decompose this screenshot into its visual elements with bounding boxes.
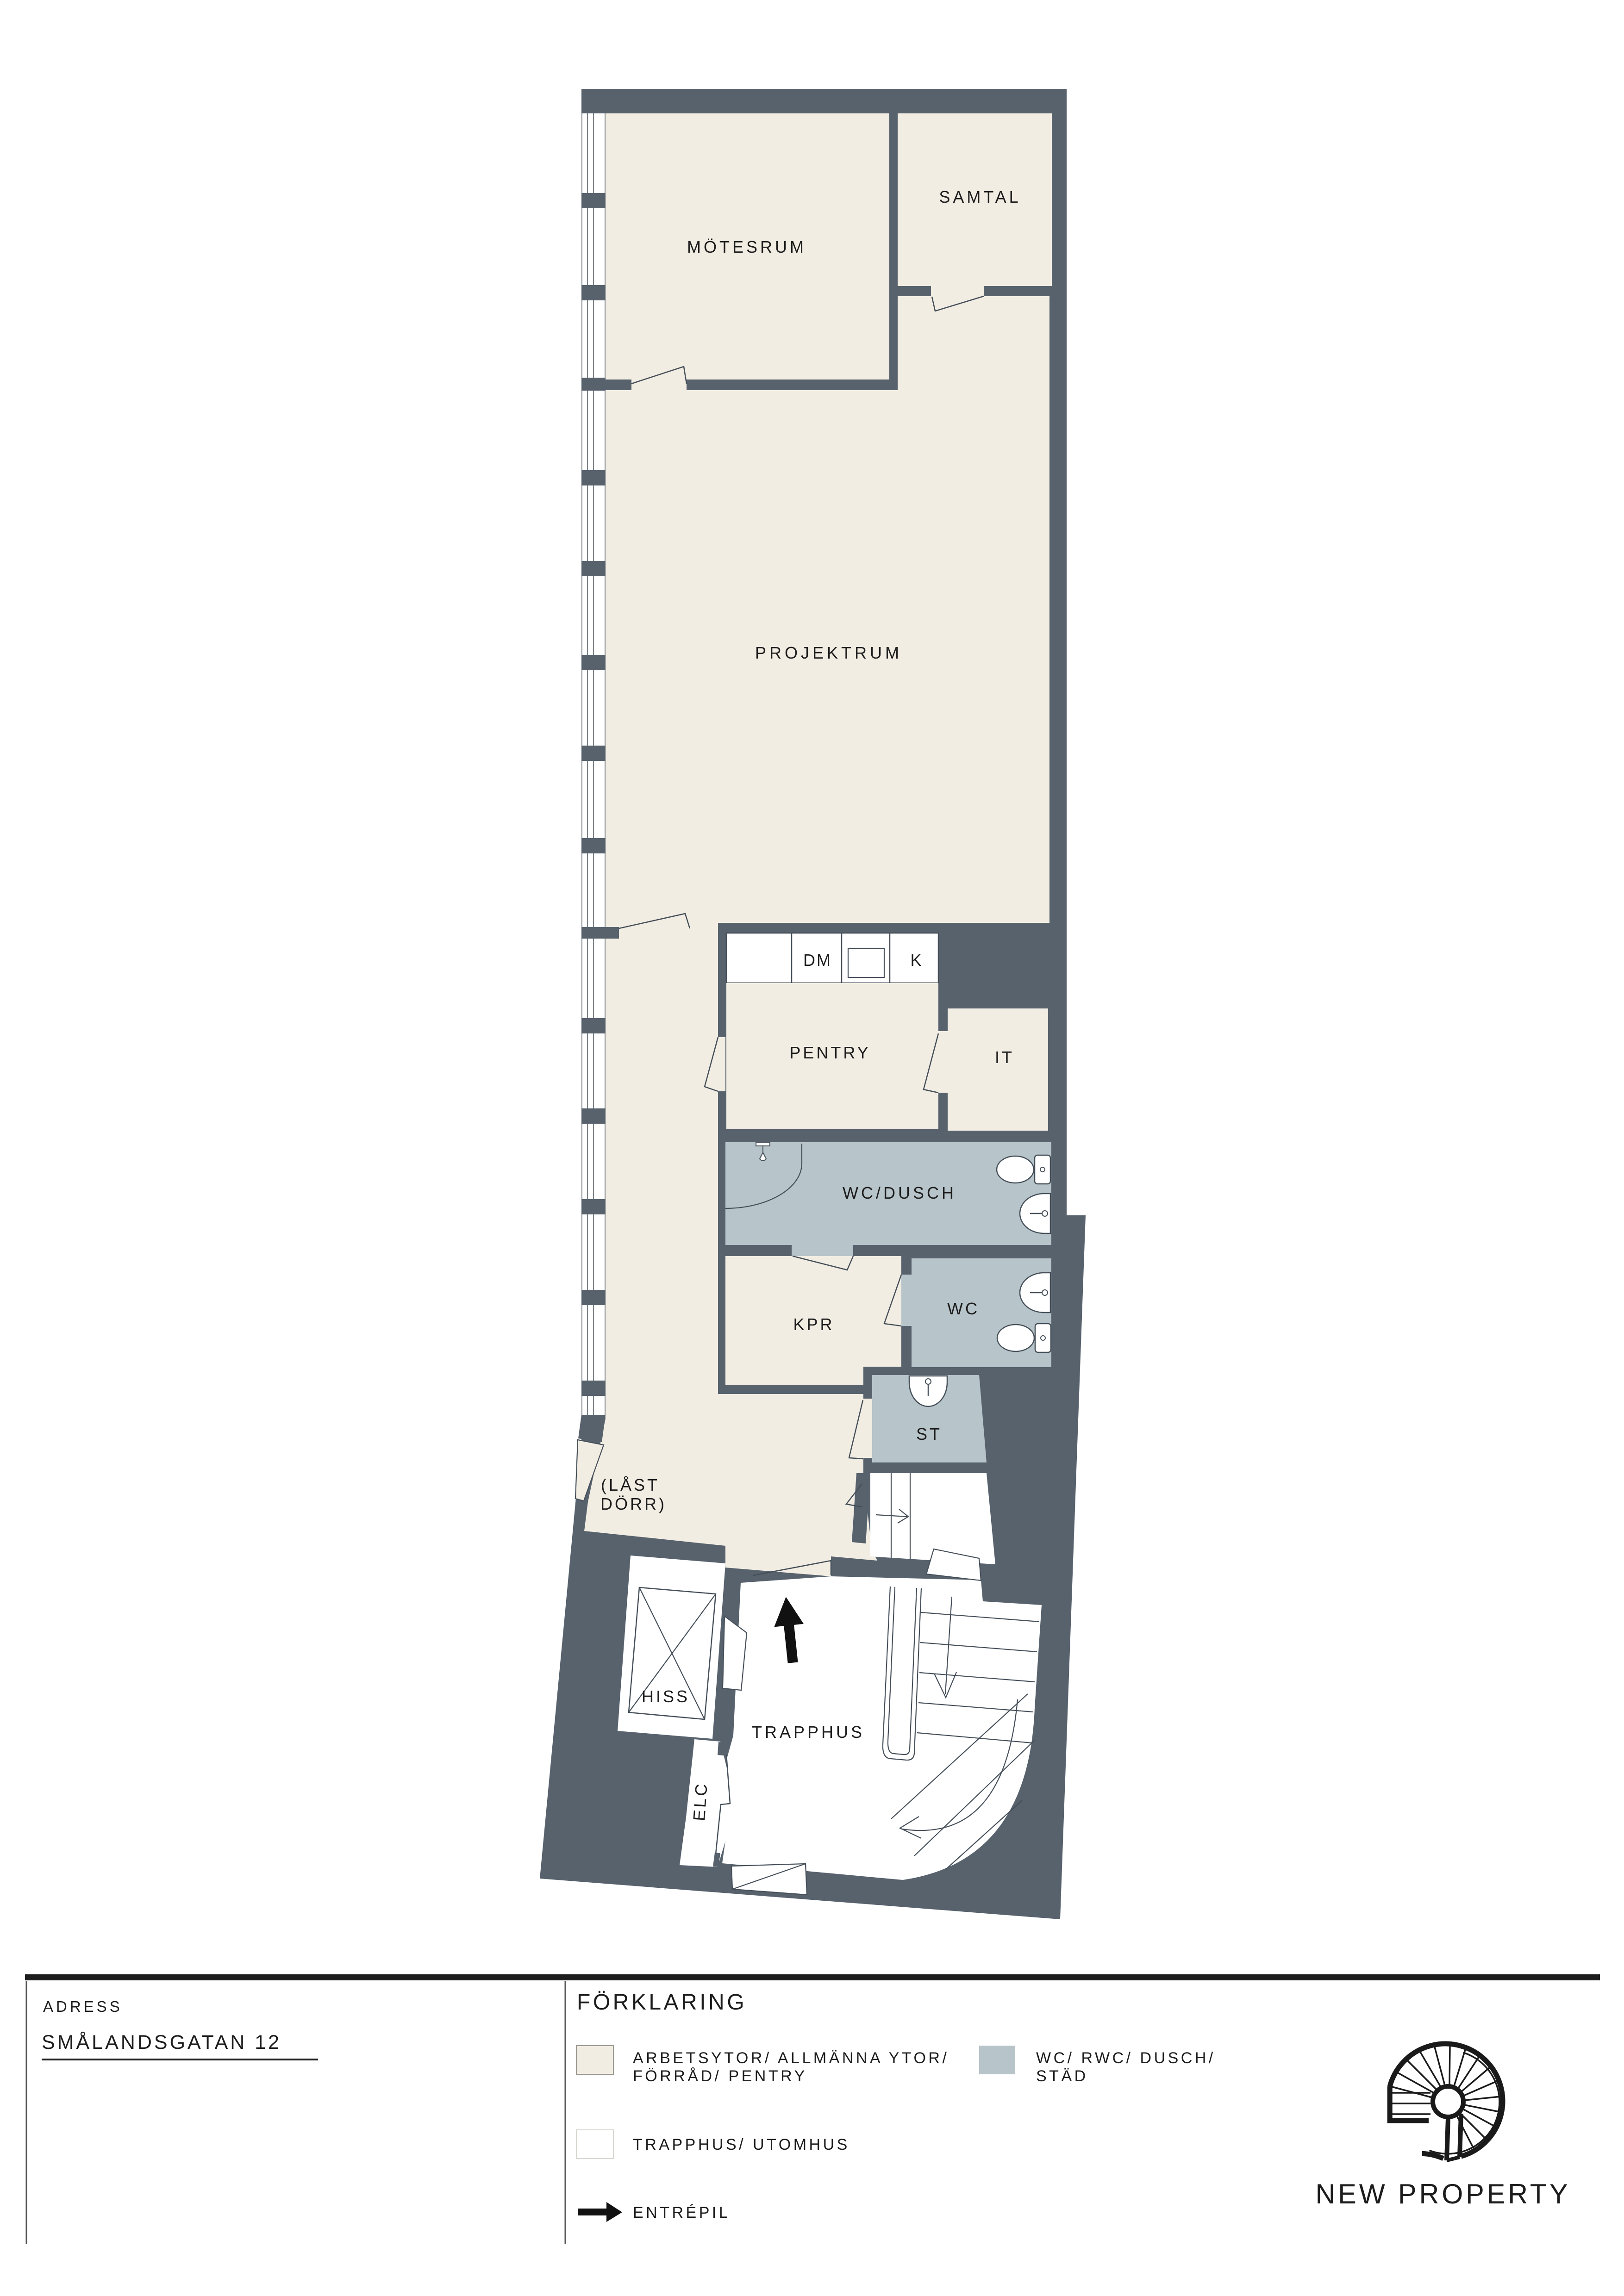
svg-text:K: K [910, 951, 923, 970]
svg-text:HISS: HISS [642, 1687, 690, 1706]
svg-text:WC: WC [947, 1299, 980, 1318]
svg-text:(LÅST: (LÅST [601, 1475, 660, 1494]
svg-text:STÄD: STÄD [1036, 2067, 1088, 2085]
svg-text:ARBETSYTOR/ ALLMÄNNA YTOR/: ARBETSYTOR/ ALLMÄNNA YTOR/ [633, 2049, 949, 2067]
svg-text:ST: ST [916, 1425, 942, 1444]
svg-text:PROJEKTRUM: PROJEKTRUM [755, 643, 902, 662]
svg-text:WC/DUSCH: WC/DUSCH [843, 1183, 956, 1202]
svg-text:FÖRRÅD/ PENTRY: FÖRRÅD/ PENTRY [633, 2067, 807, 2085]
svg-text:MÖTESRUM: MÖTESRUM [687, 237, 806, 256]
svg-text:SAMTAL: SAMTAL [939, 187, 1021, 206]
svg-text:NEW PROPERTY: NEW PROPERTY [1316, 2178, 1571, 2209]
svg-text:IT: IT [995, 1048, 1014, 1067]
svg-text:TRAPPHUS: TRAPPHUS [752, 1723, 865, 1742]
svg-text:WC/ RWC/ DUSCH/: WC/ RWC/ DUSCH/ [1036, 2049, 1216, 2067]
svg-text:TRAPPHUS/ UTOMHUS: TRAPPHUS/ UTOMHUS [633, 2136, 850, 2153]
svg-text:PENTRY: PENTRY [789, 1043, 870, 1062]
svg-text:ENTRÉPIL: ENTRÉPIL [633, 2204, 730, 2221]
svg-text:SMÅLANDSGATAN 12: SMÅLANDSGATAN 12 [42, 2031, 281, 2053]
svg-text:FÖRKLARING: FÖRKLARING [577, 1990, 747, 2015]
svg-text:ELC: ELC [689, 1781, 711, 1822]
svg-text:DÖRR): DÖRR) [600, 1494, 667, 1513]
svg-text:KPR: KPR [793, 1315, 834, 1334]
svg-text:ADRESS: ADRESS [43, 1998, 123, 2015]
svg-text:DM: DM [803, 951, 832, 970]
